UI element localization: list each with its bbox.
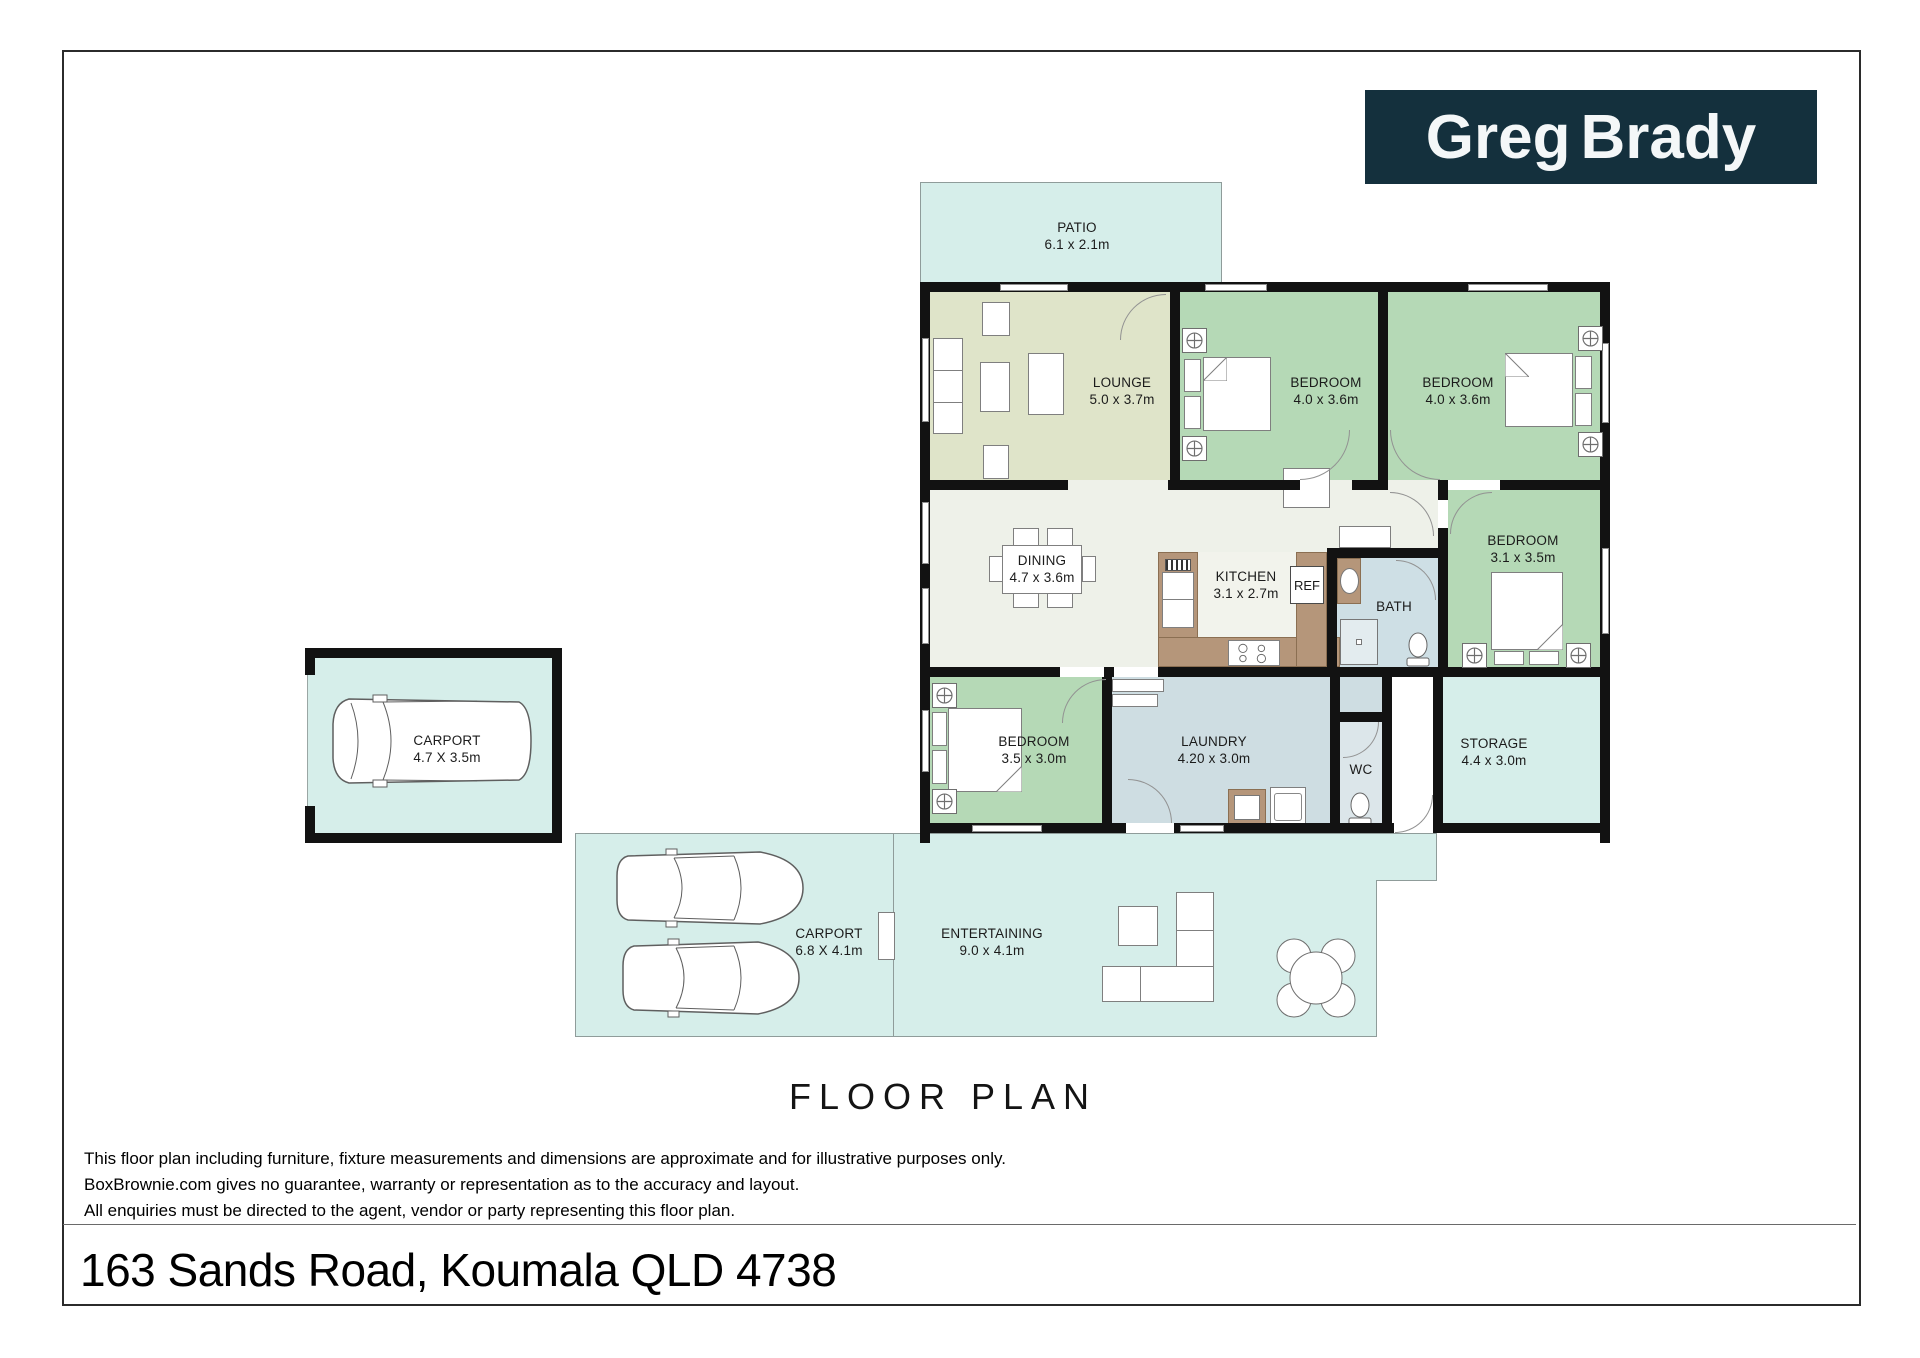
slab-step: [1376, 833, 1437, 881]
outdoor-dining-set-icon: [1270, 932, 1362, 1024]
pillow-icon: [1184, 359, 1201, 392]
room-laundry-nook: [1340, 677, 1382, 712]
cooktop: [1228, 640, 1280, 666]
dining-chair-icon: [1013, 593, 1039, 608]
armchair-icon: [983, 445, 1009, 479]
agency-logo-part2: Brady: [1580, 102, 1756, 173]
wall-segment: [1327, 548, 1337, 677]
ceiling-fan-icon: [1578, 326, 1603, 351]
ceiling-fan-icon: [932, 683, 957, 708]
room-dims: 4.20 x 3.0m: [1178, 750, 1251, 767]
bed-fold-line: [1203, 357, 1227, 381]
wall-segment: [1500, 480, 1600, 490]
disclaimer-line: All enquiries must be directed to the ag…: [84, 1198, 1006, 1224]
room-dims: 4.0 x 3.6m: [1422, 391, 1493, 408]
window: [922, 338, 929, 422]
bed-fold-line: [1537, 624, 1563, 650]
room-label-bedroom4: BEDROOM 3.5 x 3.0m: [998, 733, 1069, 767]
room-dims: 4.4 x 3.0m: [1460, 752, 1527, 769]
coffee-table-icon: [980, 362, 1010, 412]
room-dims: 3.1 x 3.5m: [1487, 549, 1558, 566]
property-address: 163 Sands Road, Koumala QLD 4738: [80, 1243, 836, 1297]
ceiling-fan-icon: [1182, 328, 1207, 353]
wall-segment: [305, 648, 315, 675]
room-name: KITCHEN: [1213, 568, 1278, 585]
wall-segment: [1330, 677, 1340, 833]
room-name: CARPORT: [795, 925, 862, 942]
refrigerator: REF: [1290, 566, 1324, 604]
bath-sink: [1340, 568, 1359, 594]
wall-segment: [1382, 712, 1392, 833]
wall-segment: [305, 806, 315, 843]
wall-segment: [1104, 667, 1114, 677]
disclaimer: This floor plan including furniture, fix…: [84, 1146, 1006, 1224]
room-label-dining: DINING 4.7 x 3.6m: [1009, 552, 1074, 586]
room-name: DINING: [1009, 552, 1074, 569]
window: [922, 710, 929, 772]
sofa-icon: [1102, 966, 1214, 1002]
wall-segment: [1327, 548, 1443, 558]
armchair-icon: [982, 302, 1010, 336]
room-name: LAUNDRY: [1178, 733, 1251, 750]
floor-plan-sheet: GregBrady REF: [0, 0, 1920, 1358]
pillow-icon: [1575, 393, 1592, 426]
wall-segment: [552, 648, 562, 843]
room-dims: 5.0 x 3.7m: [1089, 391, 1154, 408]
kitchen-faucet: [1165, 559, 1191, 571]
wall-segment: [305, 833, 562, 843]
wall-segment: [920, 667, 1060, 677]
wall-segment: [1170, 292, 1180, 480]
sofa-cushion-line: [933, 370, 963, 371]
slab-post: [878, 912, 895, 960]
wall-segment: [1352, 480, 1388, 490]
sofa-cushion-line: [933, 402, 963, 403]
room-name: ENTERTAINING: [941, 925, 1043, 942]
room-label-bedroom3: BEDROOM 3.1 x 3.5m: [1487, 532, 1558, 566]
pillow-icon: [932, 712, 947, 746]
shower-drain: [1356, 639, 1362, 645]
window: [922, 502, 929, 564]
page-title: FLOOR PLAN: [789, 1076, 1097, 1118]
door-gap: [1126, 823, 1174, 833]
pillow-icon: [1575, 356, 1592, 389]
window: [1000, 284, 1068, 291]
ref-label: REF: [1294, 578, 1320, 593]
room-name: WC: [1350, 761, 1373, 778]
wall-segment: [305, 648, 562, 658]
room-label-storage: STORAGE 4.4 x 3.0m: [1460, 735, 1527, 769]
wall-segment: [1378, 292, 1388, 480]
laundry-bench: [1112, 679, 1164, 692]
room-label-laundry: LAUNDRY 4.20 x 3.0m: [1178, 733, 1251, 767]
room-dims: 3.5 x 3.0m: [998, 750, 1069, 767]
room-name: BEDROOM: [1290, 374, 1361, 391]
room-label-carport-single: CARPORT 4.7 X 3.5m: [413, 732, 480, 766]
room-dims: 4.7 X 3.5m: [413, 749, 480, 766]
room-label-bath: BATH: [1376, 598, 1412, 615]
ceiling-fan-icon: [1182, 436, 1207, 461]
room-dims: 4.0 x 3.6m: [1290, 391, 1361, 408]
side-table-icon: [1118, 906, 1158, 946]
window: [922, 588, 929, 644]
pillow-icon: [1494, 651, 1524, 665]
room-dims: 3.1 x 2.7m: [1213, 585, 1278, 602]
room-name: PATIO: [1044, 219, 1109, 236]
window: [1205, 284, 1267, 291]
dining-chair-icon: [989, 556, 1003, 582]
window: [1180, 825, 1224, 832]
wall-segment: [1438, 480, 1448, 500]
laundry-bench: [1112, 694, 1158, 707]
sofa-cushion-line: [1176, 930, 1214, 931]
wall-segment: [920, 480, 1068, 490]
agency-logo-part1: Greg: [1426, 102, 1571, 173]
room-name: BEDROOM: [1487, 532, 1558, 549]
ceiling-fan-icon: [1566, 643, 1591, 668]
room-label-kitchen: KITCHEN 3.1 x 2.7m: [1213, 568, 1278, 602]
room-label-wc: WC: [1350, 761, 1373, 778]
ceiling-fan-icon: [1462, 643, 1487, 668]
pillow-icon: [932, 750, 947, 784]
dining-chair-icon: [1013, 528, 1039, 546]
window: [1602, 343, 1609, 423]
room-label-patio: PATIO 6.1 x 2.1m: [1044, 219, 1109, 253]
linen-niche: [1339, 526, 1391, 548]
pillow-icon: [1184, 396, 1201, 429]
wall-segment: [1168, 480, 1300, 490]
window: [1602, 548, 1609, 634]
dining-chair-icon: [1047, 528, 1073, 546]
room-dims: 6.1 x 2.1m: [1044, 236, 1109, 253]
bed-fold-line: [1505, 353, 1529, 377]
room-name: BEDROOM: [998, 733, 1069, 750]
ceiling-fan-icon: [1578, 432, 1603, 457]
room-dims: 6.8 X 4.1m: [795, 942, 862, 959]
wall-segment: [1158, 667, 1610, 677]
armchair-icon: [1028, 353, 1064, 415]
room-dims: 4.7 x 3.6m: [1009, 569, 1074, 586]
room-name: LOUNGE: [1089, 374, 1154, 391]
room-label-bedroom2: BEDROOM 4.0 x 3.6m: [1422, 374, 1493, 408]
washing-machine-lid: [1274, 793, 1302, 821]
room-label-lounge: LOUNGE 5.0 x 3.7m: [1089, 374, 1154, 408]
window: [1468, 284, 1548, 291]
car-icon: [618, 938, 804, 1018]
room-name: STORAGE: [1460, 735, 1527, 752]
kitchen-sink: [1162, 572, 1194, 628]
car-icon: [612, 848, 808, 928]
disclaimer-line: This floor plan including furniture, fix…: [84, 1146, 1006, 1172]
room-label-bedroom1: BEDROOM 4.0 x 3.6m: [1290, 374, 1361, 408]
room-name: BATH: [1376, 598, 1412, 615]
ceiling-fan-icon: [932, 789, 957, 814]
laundry-tub-basin: [1234, 795, 1260, 820]
address-divider-line: [63, 1224, 1856, 1225]
kitchen-sink-divider: [1162, 599, 1194, 600]
wall-segment: [1433, 677, 1443, 833]
room-label-carport-double: CARPORT 6.8 X 4.1m: [795, 925, 862, 959]
window: [972, 825, 1042, 832]
wall-segment: [1382, 677, 1392, 712]
sofa-icon: [933, 338, 963, 434]
disclaimer-line: BoxBrownie.com gives no guarantee, warra…: [84, 1172, 1006, 1198]
room-name: BEDROOM: [1422, 374, 1493, 391]
bath-toilet-icon: [1404, 632, 1432, 668]
room-name: CARPORT: [413, 732, 480, 749]
dining-chair-icon: [1047, 593, 1073, 608]
room-label-entertaining: ENTERTAINING 9.0 x 4.1m: [941, 925, 1043, 959]
room-dims: 9.0 x 4.1m: [941, 942, 1043, 959]
dining-chair-icon: [1082, 556, 1096, 582]
bed-fold-line: [996, 766, 1022, 792]
sofa-cushion-line: [1140, 966, 1141, 1002]
agency-logo: GregBrady: [1365, 90, 1817, 184]
pillow-icon: [1529, 651, 1559, 665]
